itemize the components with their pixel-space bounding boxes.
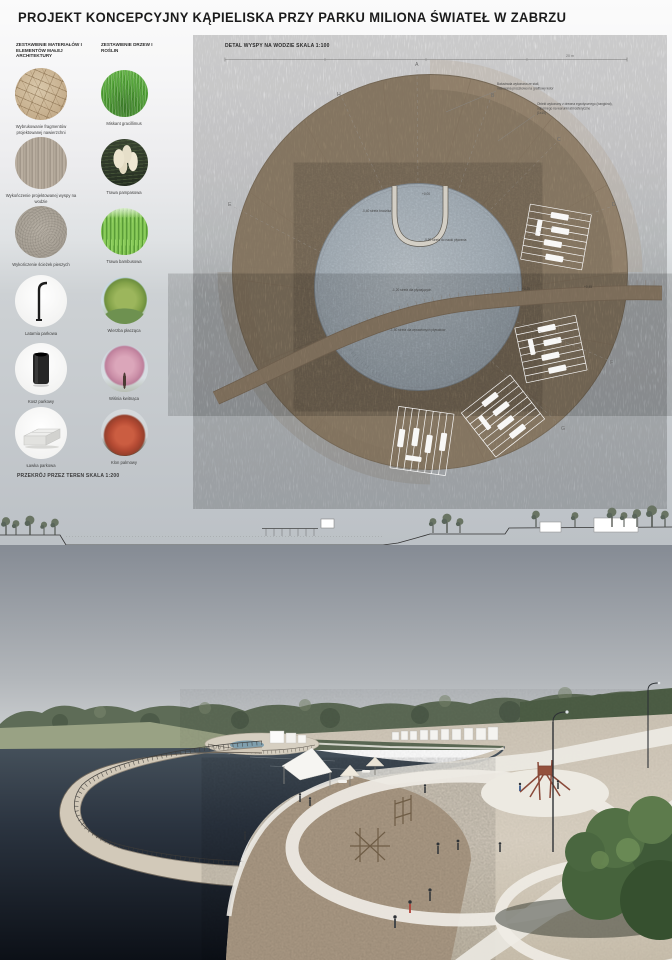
swatch-willow: Wierzba płacząca (101, 277, 148, 324)
people (244, 780, 559, 928)
render-pier (60, 741, 418, 898)
swatch-label: Trawa bambusowa (91, 259, 157, 265)
lake (0, 737, 505, 960)
miscanthus-image (101, 70, 148, 117)
swatch-wood-decking: Wykończenie projektowanej wyspy na wodzi… (15, 137, 67, 189)
rope-pyramid (585, 836, 615, 876)
treeline (0, 690, 672, 750)
changing-cabins (392, 727, 498, 740)
swatch-label: Miskant gracillimus (91, 121, 157, 127)
stone-paving-image (15, 68, 67, 120)
splash-pad (481, 769, 609, 817)
park-bin-image (15, 343, 67, 395)
materials-legend-header: ZESTAWIENIE MATERIAŁÓW I ELEMENTÓW MAŁEJ… (16, 42, 90, 59)
park-lantern-image (15, 275, 67, 327)
sky (0, 545, 672, 740)
presentation-board: PROJEKT KONCEPCYJNY KĄPIELISKA PRZY PARK… (0, 0, 672, 960)
swatch-label: Latarnia parkowa (3, 331, 79, 337)
island (205, 731, 319, 755)
swatch-park-bin: Kosz parkowy (15, 343, 67, 395)
litter-bin-icon (15, 343, 67, 395)
section-title: PRZEKRÓJ PRZEZ TEREN SKALA 1:200 (17, 473, 119, 479)
swatch-park-bench: Ławka parkowa (15, 407, 67, 459)
beach-sand (225, 714, 672, 960)
park-bench-image (15, 407, 67, 459)
perspective-render (0, 545, 672, 960)
shade-sail (282, 748, 332, 788)
pampas-image (101, 139, 148, 186)
willow-image (101, 277, 148, 324)
plants-legend-header: ZESTAWIENIE DRZEW I ROŚLIN (101, 42, 171, 53)
swatch-park-lantern: Latarnia parkowa (15, 275, 67, 327)
swatch-bamboo-grass: Trawa bambusowa (101, 208, 148, 255)
treeline-shadows (52, 692, 665, 733)
street-lamps (553, 682, 660, 852)
right-lawn (540, 716, 672, 802)
bench-icon (15, 407, 67, 459)
left-lawn (0, 722, 238, 749)
page-title: PROJEKT KONCEPCYJNY KĄPIELISKA PRZY PARK… (18, 10, 566, 25)
far-shore-path (240, 740, 504, 749)
swatch-label: Klon palmowy (91, 460, 157, 466)
swatch-label: Wybrukowanie fragmentów projektowanej na… (3, 124, 79, 135)
concrete-image (15, 206, 67, 258)
paved-terrace (226, 776, 471, 960)
large-tree (495, 796, 672, 940)
swatch-label: Wykończenie projektowanej wyspy na wodzi… (3, 193, 79, 204)
swatch-miscanthus: Miskant gracillimus (101, 70, 148, 117)
bamboo-grass-image (101, 208, 148, 255)
plan-title: DETAL WYSPY NA WODZIE SKALA 1:100 (225, 43, 330, 49)
diagonal-white-path (455, 800, 672, 960)
wood-decking-image (15, 137, 67, 189)
swatch-label: Wierzba płacząca (91, 328, 157, 334)
maple-image (101, 409, 148, 456)
play-ring-small (500, 862, 672, 960)
swatch-label: Trawa pampasowa (91, 190, 157, 196)
swatch-pampas: Trawa pampasowa (101, 139, 148, 186)
treeline-highlights (94, 687, 572, 718)
climbing-frames (350, 795, 411, 862)
climbing-tower (520, 760, 570, 800)
upper-white-path (352, 726, 672, 788)
play-ring-large (292, 776, 632, 920)
swatch-label: Wykończenie ścieżek pieszych (3, 262, 79, 268)
swatch-cherry: Wiśnia kwitnąca (101, 345, 148, 392)
swatch-label: Ławka parkowa (3, 463, 79, 469)
swatch-maple: Klon palmowy (101, 409, 148, 456)
near-trees-right (520, 688, 672, 772)
lantern-icon (15, 275, 67, 327)
swatch-concrete: Wykończenie ścieżek pieszych (15, 206, 67, 258)
parasols (338, 757, 384, 786)
water-sparkle (180, 752, 365, 770)
swatch-label: Kosz parkowy (3, 399, 79, 405)
swatch-stone-paving: Wybrukowanie fragmentów projektowanej na… (15, 68, 67, 120)
cherry-image (101, 345, 148, 392)
swatch-label: Wiśnia kwitnąca (91, 396, 157, 402)
